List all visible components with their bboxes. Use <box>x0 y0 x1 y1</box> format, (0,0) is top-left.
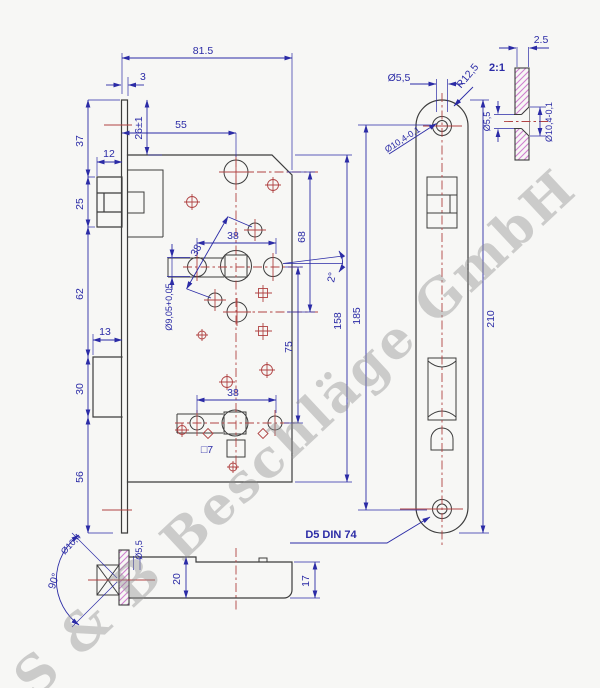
latch-bolt <box>97 177 122 227</box>
dim-csk-dia: Ø10,4 <box>59 532 83 557</box>
dim-csk-angle: 90° <box>46 572 62 591</box>
deadbolt-notch <box>93 357 122 417</box>
dim-backset: 55 <box>175 119 187 131</box>
latch-housing <box>128 170 164 237</box>
technical-drawing-page: 81.5 3 26±1 55 37 12 25 62 13 30 <box>0 0 600 688</box>
dim-screw-pitch: 185 <box>351 307 363 325</box>
note-detail-scale: 2:1 <box>489 62 505 74</box>
note-din: D5 DIN 74 <box>305 529 357 541</box>
dim-top-to-latch: 37 <box>74 135 86 147</box>
dim-follower-pitch: 75 <box>283 341 295 353</box>
faceplate-edge <box>122 100 128 533</box>
dim-tilt-angle: 2° <box>325 271 339 283</box>
dim-latch-height: 25 <box>74 198 86 210</box>
dim-slot-dia: Ø9,05+0,05 <box>164 283 174 330</box>
upper-slot <box>168 258 224 277</box>
dim-latch-depth: 12 <box>103 148 115 160</box>
dimensions: 81.5 3 26±1 55 37 12 25 62 13 30 <box>46 34 554 627</box>
dim-overall-width: 81.5 <box>193 45 214 57</box>
dim-faceplate-offset: 3 <box>140 71 146 83</box>
dim-det-csk-dia: Ø10,4-0,1 <box>544 102 554 142</box>
dim-plate-thickness: 2.5 <box>534 34 549 46</box>
dim-case-top-offset: 26±1 <box>133 116 145 139</box>
dim-case-depth: 17 <box>300 575 312 587</box>
dim-square-hole: □7 <box>201 444 213 456</box>
dim-hole-drop: 68 <box>296 231 308 243</box>
detail-view-2-1 <box>504 68 548 160</box>
square-hole-marks <box>203 285 272 439</box>
dim-bolt-depth: 13 <box>99 326 111 338</box>
dim-case-height: 158 <box>332 312 344 330</box>
dim-latch-to-bolt: 62 <box>74 288 86 300</box>
dim-hole-pitch-diag: 38 <box>188 242 204 258</box>
dim-det-screw-dia: Ø5,5 <box>482 112 492 132</box>
lock-drawing-canvas: 81.5 3 26±1 55 37 12 25 62 13 30 <box>0 0 600 688</box>
dim-bolt-to-bottom: 56 <box>74 471 86 483</box>
dim-hole-pitch-upper: 38 <box>227 230 239 242</box>
dim-screw-dia: Ø5,5 <box>388 72 411 84</box>
dim-plate-radius: R12,5 <box>454 61 481 90</box>
dim-bolt-height: 30 <box>74 383 86 395</box>
dim-plate-length: 210 <box>485 310 497 328</box>
dim-hole-pitch-lower: 38 <box>227 387 239 399</box>
horizontal-centerlines <box>175 172 318 423</box>
